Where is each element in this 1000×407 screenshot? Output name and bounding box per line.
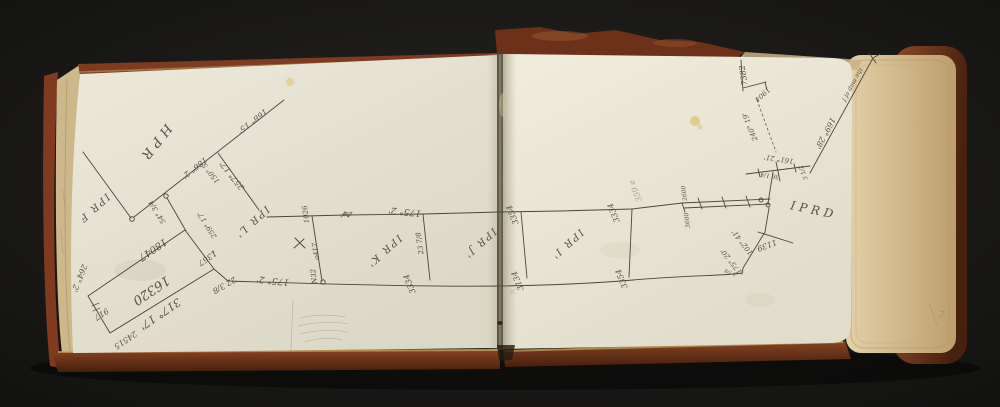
- ink-blot: [497, 321, 502, 325]
- smudge: [745, 293, 775, 307]
- foxing-spot: [286, 78, 294, 86]
- smudge: [600, 242, 640, 258]
- open-pages: [71, 54, 852, 361]
- foxing-spot: [698, 125, 703, 130]
- annotation-label: 35: [343, 210, 352, 218]
- photograph-of-open-sketchbook: HPRIPR F168° 15'186° 2'150° 5'257° 17'54…: [0, 0, 1000, 407]
- right-fore-edge-pages: [846, 55, 956, 353]
- cover-wear-patch: [653, 39, 697, 47]
- gutter-stain: [499, 93, 507, 117]
- sketchbook-scene: HPRIPR F168° 15'186° 2'150° 5'257° 17'54…: [0, 0, 1000, 407]
- foxing-spot: [690, 116, 700, 126]
- cover-wear-patch: [532, 31, 588, 41]
